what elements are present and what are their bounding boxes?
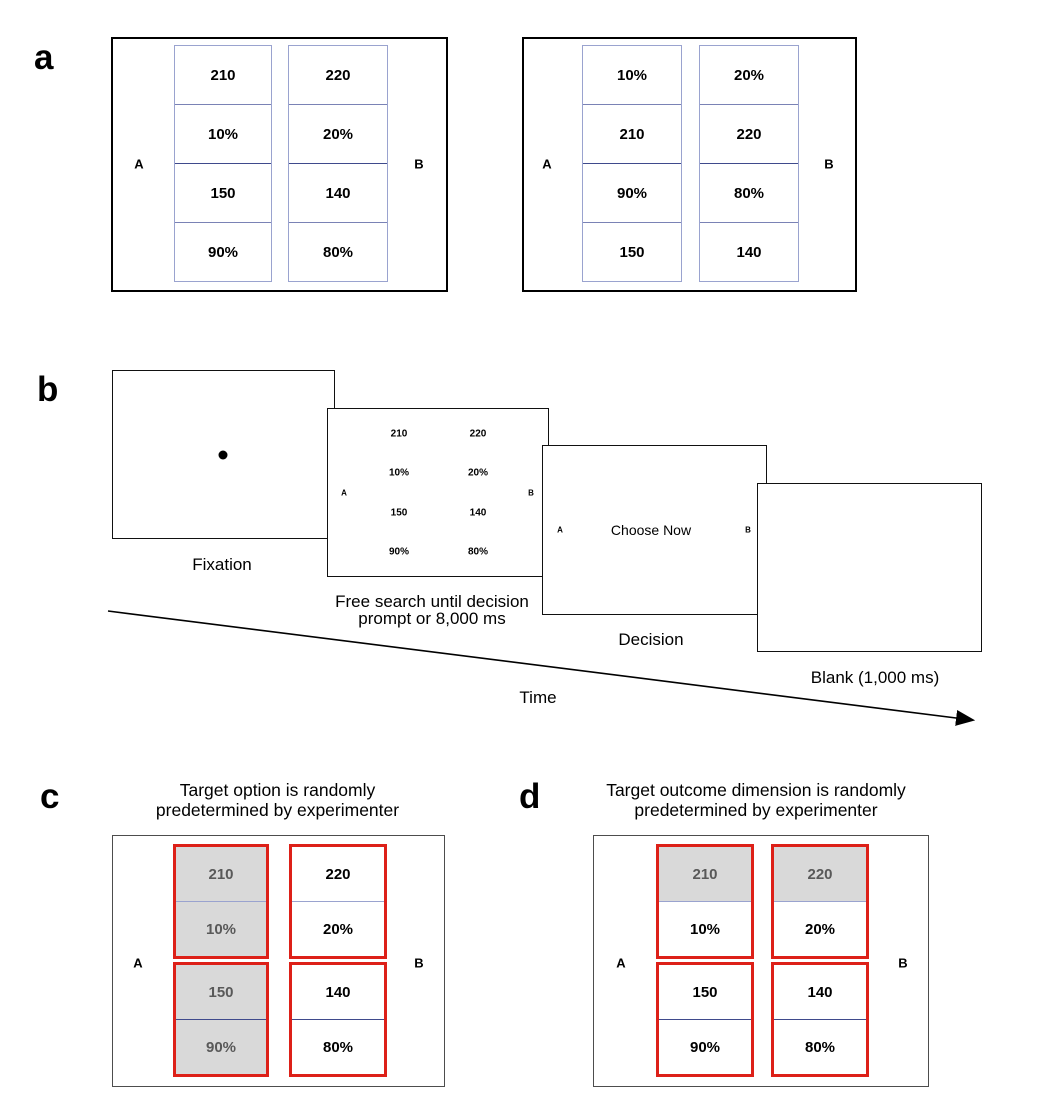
figure-canvas: a A 210 10% 150 90% 220 20% 140 80% B A … bbox=[0, 0, 1039, 1114]
fixation-stage-label: Fixation bbox=[122, 556, 322, 573]
outcome-cell: 20% bbox=[289, 104, 387, 163]
outcome-cell: 80% bbox=[774, 1019, 866, 1074]
outcome-cell: 150 bbox=[583, 222, 681, 281]
stimulus-box-1: A 210 10% 150 90% 220 20% 140 80% B bbox=[111, 37, 448, 292]
outcome-block: 150 90% bbox=[173, 962, 269, 1077]
time-label: Time bbox=[458, 689, 618, 706]
outcome-block: 210 10% bbox=[173, 844, 269, 959]
option-a-column: 10% 210 90% 150 bbox=[582, 45, 682, 282]
outcome-cell: 20% bbox=[774, 901, 866, 956]
outcome-cell: 140 bbox=[289, 163, 387, 222]
outcome-value: 80% bbox=[468, 547, 488, 558]
panel-c-title-line1: Target option is randomly bbox=[112, 781, 443, 801]
outcome-cell: 220 bbox=[700, 104, 798, 163]
outcome-cell: 80% bbox=[289, 222, 387, 281]
outcome-value: 90% bbox=[389, 547, 409, 558]
outcome-cell: 80% bbox=[700, 163, 798, 222]
option-b-label: B bbox=[898, 956, 907, 971]
outcome-value: 220 bbox=[470, 429, 487, 440]
panel-c-box: A 210 10% 150 90% 220 20% 140 80% B bbox=[112, 835, 445, 1087]
outcome-cell: 90% bbox=[175, 222, 271, 281]
outcome-value: 150 bbox=[391, 508, 408, 519]
outcome-cell-highlighted: 210 bbox=[659, 847, 751, 901]
option-b-column: 20% 220 80% 140 bbox=[699, 45, 799, 282]
choose-now-text: Choose Now bbox=[611, 522, 691, 538]
outcome-cell-highlighted: 220 bbox=[774, 847, 866, 901]
outcome-block: 220 20% bbox=[289, 844, 387, 959]
option-a-column: 210 10% 150 90% bbox=[174, 45, 272, 282]
target-option-a-column: 210 10% 150 90% bbox=[173, 844, 269, 1080]
outcome-value: 210 bbox=[391, 429, 408, 440]
panel-d-box: A 210 10% 150 90% 220 20% 140 80% B bbox=[593, 835, 929, 1087]
option-b-label: B bbox=[824, 157, 833, 172]
outcome-value: 10% bbox=[389, 468, 409, 479]
option-b-label: B bbox=[414, 956, 423, 971]
panel-d-title-line2: predetermined by experimenter bbox=[573, 801, 939, 821]
option-a-label: A bbox=[542, 157, 551, 172]
outcome-cell: 220 bbox=[292, 847, 384, 901]
outcome-block: 210 10% bbox=[656, 844, 754, 959]
blank-screen bbox=[757, 483, 982, 652]
outcome-cell: 10% bbox=[659, 901, 751, 956]
option-b-label: B bbox=[528, 489, 534, 498]
panel-a-letter: a bbox=[34, 40, 53, 75]
option-a-label: A bbox=[341, 489, 347, 498]
outcome-cell: 150 bbox=[175, 163, 271, 222]
panel-b-letter: b bbox=[37, 372, 58, 407]
panel-c-letter: c bbox=[40, 779, 59, 814]
outcome-block: 220 20% bbox=[771, 844, 869, 959]
option-b-column: 220 20% 140 80% bbox=[288, 45, 388, 282]
outcome-cell: 140 bbox=[700, 222, 798, 281]
outcome-cell: 150 bbox=[659, 965, 751, 1019]
outcome-cell: 80% bbox=[292, 1019, 384, 1074]
outcome-cell: 220 bbox=[289, 46, 387, 104]
option-a-label: A bbox=[134, 157, 143, 172]
panel-c-title: Target option is randomly predetermined … bbox=[112, 781, 443, 820]
option-b-column: 220 20% 140 80% bbox=[289, 844, 387, 1080]
panel-d-title-line1: Target outcome dimension is randomly bbox=[573, 781, 939, 801]
free-search-screen: A 210 10% 150 90% 220 20% 140 80% B bbox=[327, 408, 549, 577]
outcome-cell: 140 bbox=[292, 965, 384, 1019]
outcome-cell-highlighted: 10% bbox=[176, 901, 266, 956]
outcome-cell-highlighted: 210 bbox=[176, 847, 266, 901]
option-b-column: 220 20% 140 80% bbox=[771, 844, 869, 1080]
outcome-cell: 10% bbox=[583, 46, 681, 104]
outcome-cell: 20% bbox=[292, 901, 384, 956]
outcome-cell: 140 bbox=[774, 965, 866, 1019]
option-b-label: B bbox=[414, 157, 423, 172]
decision-screen: A Choose Now B bbox=[542, 445, 767, 615]
panel-d-title: Target outcome dimension is randomly pre… bbox=[573, 781, 939, 820]
panel-d-letter: d bbox=[519, 779, 540, 814]
outcome-cell: 210 bbox=[175, 46, 271, 104]
fixation-screen bbox=[112, 370, 335, 539]
option-b-label: B bbox=[745, 526, 751, 535]
option-a-label: A bbox=[557, 526, 563, 535]
option-a-label: A bbox=[133, 956, 142, 971]
outcome-cell: 10% bbox=[175, 104, 271, 163]
outcome-cell: 90% bbox=[583, 163, 681, 222]
outcome-value: 140 bbox=[470, 508, 487, 519]
outcome-cell: 90% bbox=[659, 1019, 751, 1074]
outcome-block: 140 80% bbox=[289, 962, 387, 1077]
outcome-cell-highlighted: 150 bbox=[176, 965, 266, 1019]
fixation-dot bbox=[219, 451, 228, 460]
outcome-block: 140 80% bbox=[771, 962, 869, 1077]
stimulus-box-2: A 10% 210 90% 150 20% 220 80% 140 B bbox=[522, 37, 857, 292]
outcome-value: 20% bbox=[468, 468, 488, 479]
option-a-column: 210 10% 150 90% bbox=[656, 844, 754, 1080]
outcome-cell-highlighted: 90% bbox=[176, 1019, 266, 1074]
outcome-cell: 210 bbox=[583, 104, 681, 163]
outcome-block: 150 90% bbox=[656, 962, 754, 1077]
panel-c-title-line2: predetermined by experimenter bbox=[112, 801, 443, 821]
outcome-cell: 20% bbox=[700, 46, 798, 104]
option-a-label: A bbox=[616, 956, 625, 971]
